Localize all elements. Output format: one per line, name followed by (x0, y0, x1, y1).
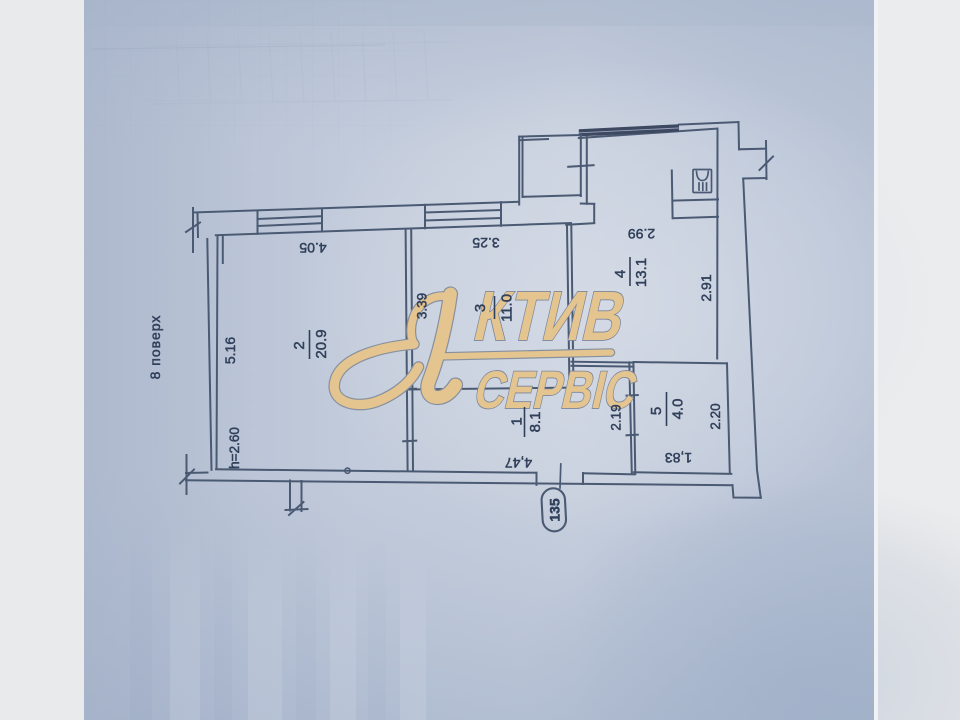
svg-text:4,47: 4,47 (505, 455, 532, 471)
svg-text:4: 4 (612, 270, 629, 278)
svg-text:2.19: 2.19 (609, 404, 624, 430)
svg-text:4.05: 4.05 (299, 240, 326, 256)
svg-text:1: 1 (509, 417, 526, 425)
svg-text:2.99: 2.99 (628, 226, 655, 242)
svg-text:2.91: 2.91 (698, 274, 714, 301)
svg-text:4.0: 4.0 (670, 399, 687, 420)
svg-text:5.16: 5.16 (222, 337, 238, 364)
svg-text:8.1: 8.1 (527, 412, 544, 433)
svg-text:20.9: 20.9 (313, 329, 330, 358)
svg-text:11.0: 11.0 (499, 294, 516, 322)
svg-text:13.1: 13.1 (633, 258, 650, 287)
svg-text:3.25: 3.25 (472, 235, 499, 251)
svg-text:3: 3 (472, 304, 489, 312)
svg-text:8 поверх: 8 поверх (147, 315, 163, 380)
svg-text:h=2.60: h=2.60 (227, 427, 242, 469)
svg-text:3.39: 3.39 (415, 293, 430, 319)
svg-text:135: 135 (547, 498, 563, 522)
svg-text:2: 2 (291, 341, 308, 349)
svg-text:КТИВ: КТИВ (467, 278, 633, 356)
svg-text:1,83: 1,83 (665, 450, 692, 466)
svg-text:2.20: 2.20 (708, 403, 723, 429)
svg-text:5: 5 (648, 407, 665, 415)
